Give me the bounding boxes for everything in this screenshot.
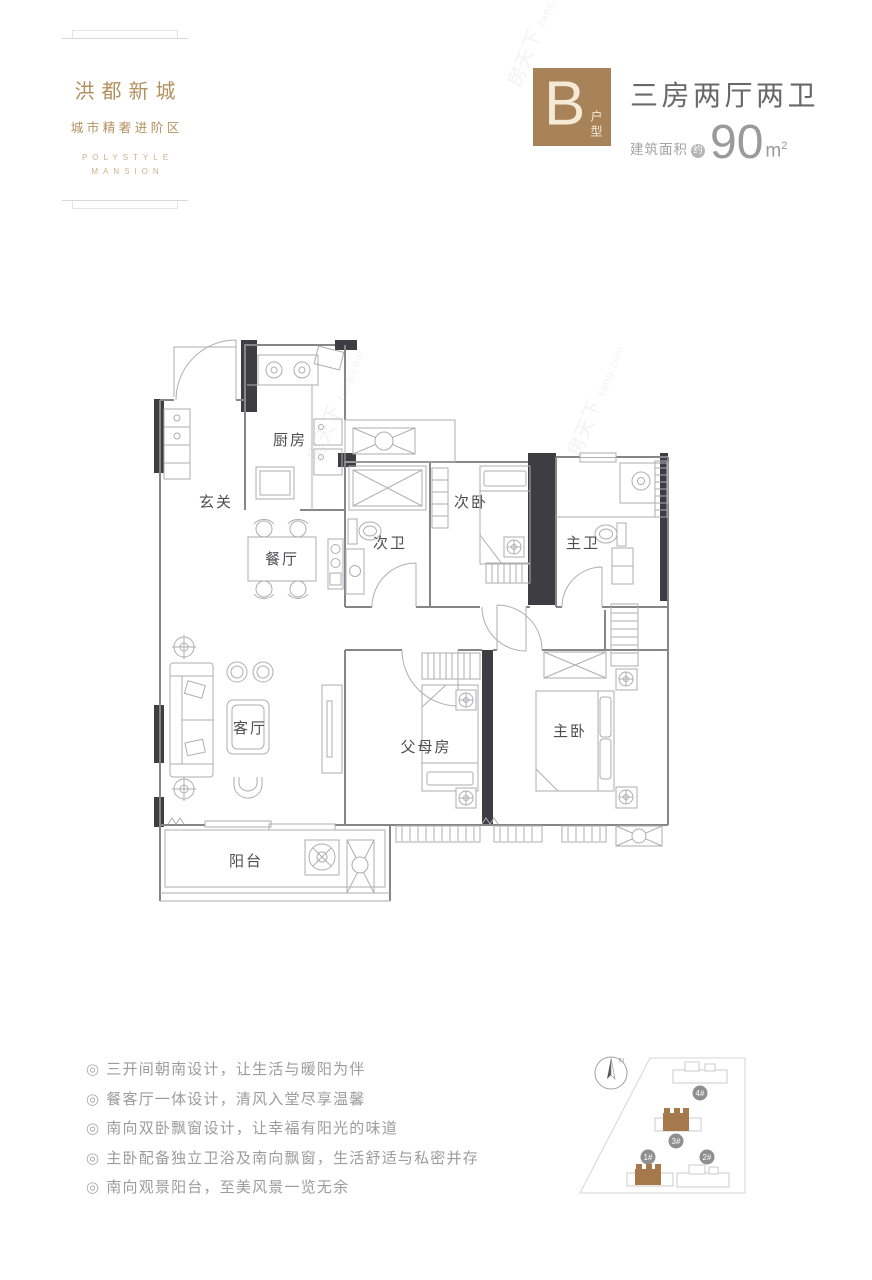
room-label-living: 客厅 <box>233 720 267 737</box>
second-bedroom-furniture <box>432 466 530 583</box>
floor-plan: 厨房 玄关 餐厅 次卫 次卧 主卫 客厅 父母房 主卧 阳台 <box>150 335 670 905</box>
entry-cabinet <box>164 409 190 479</box>
feature-item: ◎餐客厅一体设计，清风入堂尽享温馨 <box>86 1085 479 1115</box>
room-label-entry: 玄关 <box>199 494 233 511</box>
approx-circle: 约 <box>691 144 705 158</box>
room-label-bath-master: 主卫 <box>566 535 600 552</box>
ac-platform <box>345 420 455 462</box>
feature-item: ◎三开间朝南设计，让生活与暖阳为伴 <box>86 1055 479 1085</box>
brand-logo: 洪都新城 城市精奢进阶区 POLYSTYLE MANSION <box>58 30 192 209</box>
building-badge: 1# <box>644 1153 653 1162</box>
brand-en-line1: POLYSTYLE <box>58 153 192 162</box>
unit-badge: B 户型 <box>533 68 611 146</box>
parents-room-furniture <box>422 653 480 808</box>
brand-en-line2: MANSION <box>58 167 192 176</box>
bullet-icon: ◎ <box>86 1061 100 1078</box>
logo-bracket-bottom <box>62 200 188 209</box>
bullet-icon: ◎ <box>86 1120 100 1137</box>
feature-item: ◎主卧配备独立卫浴及南向飘窗，生活舒适与私密并存 <box>86 1144 479 1174</box>
building-2: 2# <box>677 1150 729 1188</box>
room-label-parents: 父母房 <box>400 739 451 756</box>
area-line: 建筑面积 约 90 m2 <box>630 121 819 165</box>
bullet-icon: ◎ <box>86 1179 100 1196</box>
bay-windows <box>396 826 662 846</box>
floorplan-poster: { "brand": { "name": "洪都新城", "tagline": … <box>0 0 872 1280</box>
room-label-dining: 餐厅 <box>265 551 299 568</box>
room-label-bed-second: 次卧 <box>454 494 488 511</box>
feature-item: ◎南向观景阳台，至美风景一览无余 <box>86 1173 479 1203</box>
unit-letter: B <box>544 69 585 140</box>
building-3-highlighted: 3# <box>655 1108 701 1149</box>
building-4: 4# <box>673 1062 727 1101</box>
master-bedroom-furniture <box>536 604 638 808</box>
living-furniture <box>170 635 342 801</box>
compass-icon: N <box>595 1057 627 1089</box>
master-bath-fixtures <box>556 453 668 584</box>
unit-type-label: 户型 <box>588 110 605 140</box>
kitchen-furniture <box>247 346 344 510</box>
building-badge: 3# <box>672 1137 681 1146</box>
area-unit: m2 <box>765 140 787 165</box>
brand-name: 洪都新城 <box>58 75 192 104</box>
unit-title: 三房两厅两卫 <box>630 74 819 114</box>
feature-item: ◎南向双卧飘窗设计，让幸福有阳光的味道 <box>86 1114 479 1144</box>
room-label-bath-second: 次卫 <box>373 535 407 552</box>
building-badge: 2# <box>703 1153 712 1162</box>
feature-list: ◎三开间朝南设计，让生活与暖阳为伴 ◎餐客厅一体设计，清风入堂尽享温馨 ◎南向双… <box>86 1055 479 1203</box>
building-badge: 4# <box>696 1089 705 1098</box>
brand-tagline: 城市精奢进阶区 <box>58 117 192 136</box>
room-label-kitchen: 厨房 <box>273 432 307 449</box>
site-plan: N 4# 3# 1# 2# <box>575 1045 790 1230</box>
room-label-balcony: 阳台 <box>229 853 263 870</box>
room-label-bed-master: 主卧 <box>553 723 587 740</box>
bullet-icon: ◎ <box>86 1150 100 1167</box>
area-value: 90 <box>710 121 763 165</box>
balcony-furniture <box>160 818 498 901</box>
header-text: 三房两厅两卫 建筑面积 约 90 m2 <box>630 74 819 165</box>
building-1-highlighted: 1# <box>627 1150 673 1187</box>
compass-north-label: N <box>619 1058 624 1065</box>
area-prefix: 建筑面积 <box>630 138 688 165</box>
bullet-icon: ◎ <box>86 1091 100 1108</box>
logo-bracket-top <box>62 30 188 39</box>
